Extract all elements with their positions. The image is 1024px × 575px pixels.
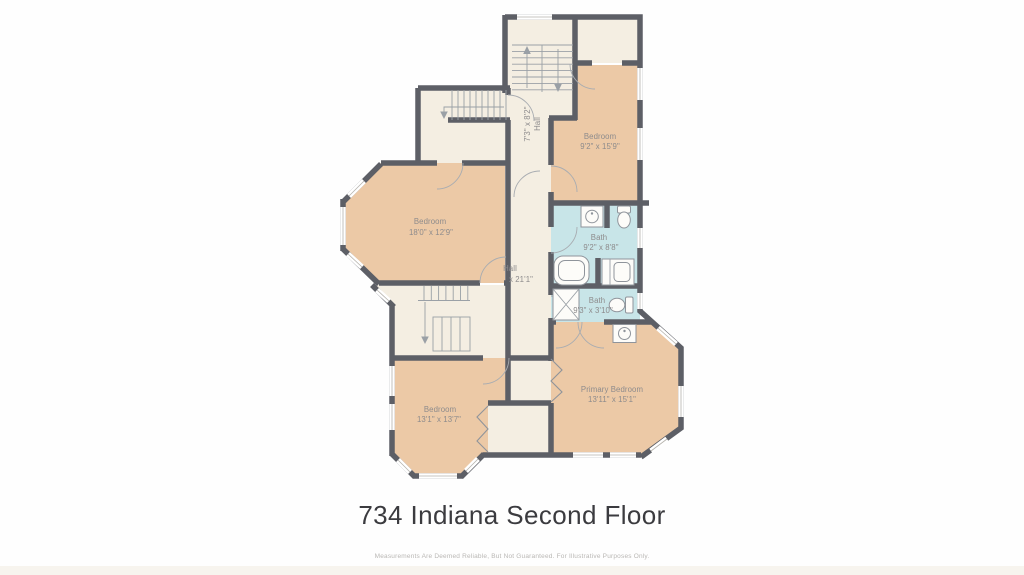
room-shape-closet-lower: [488, 403, 551, 455]
bathtub-icon: [554, 256, 589, 285]
room-shape-stair-room: [418, 88, 508, 163]
room-dims: 18'0" x 12'9": [409, 228, 453, 237]
room-label: Hall: [533, 117, 542, 131]
room-label: Bath: [591, 233, 607, 242]
room-label: Hall: [503, 264, 517, 273]
shower-icon: [553, 289, 579, 320]
sink-icon: [581, 206, 603, 227]
room-dims: 9'3" x 3'10": [573, 306, 613, 315]
room-dims: 13'11" x 15'1": [588, 395, 636, 404]
room-dims: 13'1" x 13'7": [417, 415, 461, 424]
room-label: Bedroom: [414, 217, 446, 226]
room-shape-stair-room-lower: [375, 285, 510, 358]
room-dims: 7'3" x 8'2": [523, 106, 532, 141]
shower-stall-icon: [602, 259, 634, 285]
room-dims: x 21'1": [509, 275, 533, 284]
footer-strip: [0, 566, 1024, 575]
room-label: Bedroom: [424, 405, 456, 414]
disclaimer-text: Measurements Are Deemed Reliable, But No…: [0, 553, 1024, 560]
toilet-icon: [618, 206, 631, 228]
room-label: Bath: [589, 296, 605, 305]
floor-plan-page: Hall 7'3" x 8'2" Bedroom 9'2" x 15'9" Be…: [0, 0, 1024, 575]
room-label: Bedroom: [584, 132, 616, 141]
room-dims: 9'2" x 15'9": [580, 142, 620, 151]
page-title: 734 Indiana Second Floor: [0, 500, 1024, 531]
room-label: Primary Bedroom: [581, 385, 643, 394]
room-shape-closet-upper: [508, 358, 551, 403]
floor-plan-svg: Hall 7'3" x 8'2" Bedroom 9'2" x 15'9" Be…: [0, 0, 1024, 575]
room-dims: 9'2" x 8'8": [583, 243, 618, 252]
sink-icon: [613, 325, 636, 343]
room-shape-top-closet: [575, 17, 640, 63]
